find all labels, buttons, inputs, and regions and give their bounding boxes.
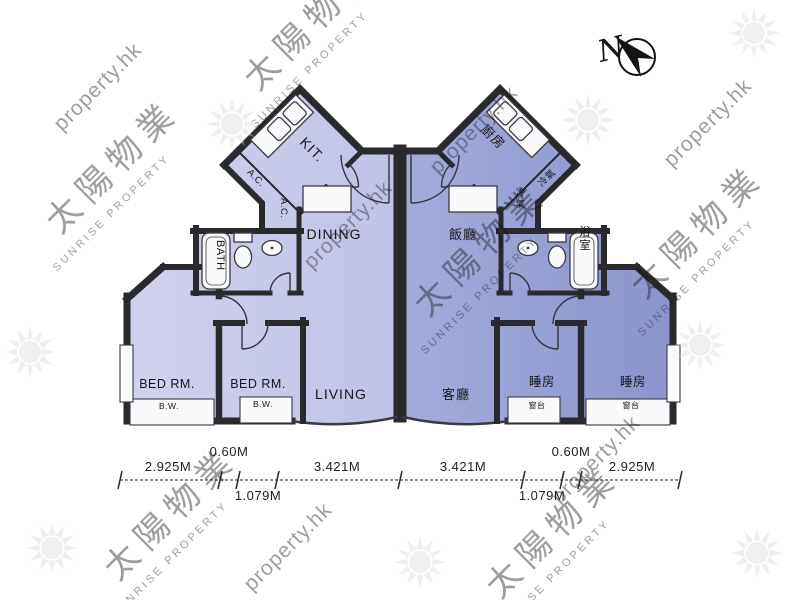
label-living: LIVING (315, 386, 367, 402)
label-bedroom1-left: BED RM. (139, 377, 195, 391)
label-bedroom2-left: BED RM. (230, 377, 286, 391)
site-watermark: property.hk (239, 498, 336, 595)
brand-watermark: 太陽物業 SUNRISE PROPERTY (459, 457, 641, 600)
label-bw2-right: 窗台 (623, 400, 640, 410)
label-bath-right: 浴室 (578, 226, 591, 253)
label-ac-wall-left: A.C. (278, 198, 289, 218)
sun-logo-watermark (562, 94, 614, 146)
dim-right-inner: 3.421M (440, 459, 486, 474)
dim-left-outer: 2.925M (145, 459, 191, 474)
site-watermark: property.hk (659, 74, 756, 171)
label-bw1-right: 窗台 (529, 400, 546, 410)
label-living-right: 客廳 (442, 387, 470, 402)
compass: N (593, 29, 655, 77)
dim-left-below: 1.079M (235, 488, 281, 503)
floor-plan: KIT. A.C. A.C. DINING BATH BED RM. BED R… (120, 89, 680, 425)
dim-right-outer: 2.925M (609, 459, 655, 474)
sun-logo-watermark (728, 7, 780, 59)
sun-logo-watermark (394, 536, 446, 588)
dim-left-inner: 3.421M (314, 459, 360, 474)
label-bedroom2-right: 睡房 (620, 374, 646, 389)
label-bath: BATH (214, 240, 226, 271)
sun-logo-watermark (4, 326, 56, 378)
sun-logo-watermark (26, 522, 78, 574)
brand-watermark: 太陽物業 SUNRISE PROPERTY (19, 92, 201, 274)
label-bw2-left: B.W. (253, 399, 273, 409)
floor-plan-canvas: KIT. A.C. A.C. DINING BATH BED RM. BED R… (0, 0, 800, 600)
sun-logo-watermark (731, 527, 783, 579)
sun-logo-watermark (674, 319, 726, 371)
floor-plan-page: KIT. A.C. A.C. DINING BATH BED RM. BED R… (0, 0, 800, 600)
label-bedroom1-right: 睡房 (529, 374, 555, 389)
label-bw1-left: B.W. (159, 401, 179, 411)
